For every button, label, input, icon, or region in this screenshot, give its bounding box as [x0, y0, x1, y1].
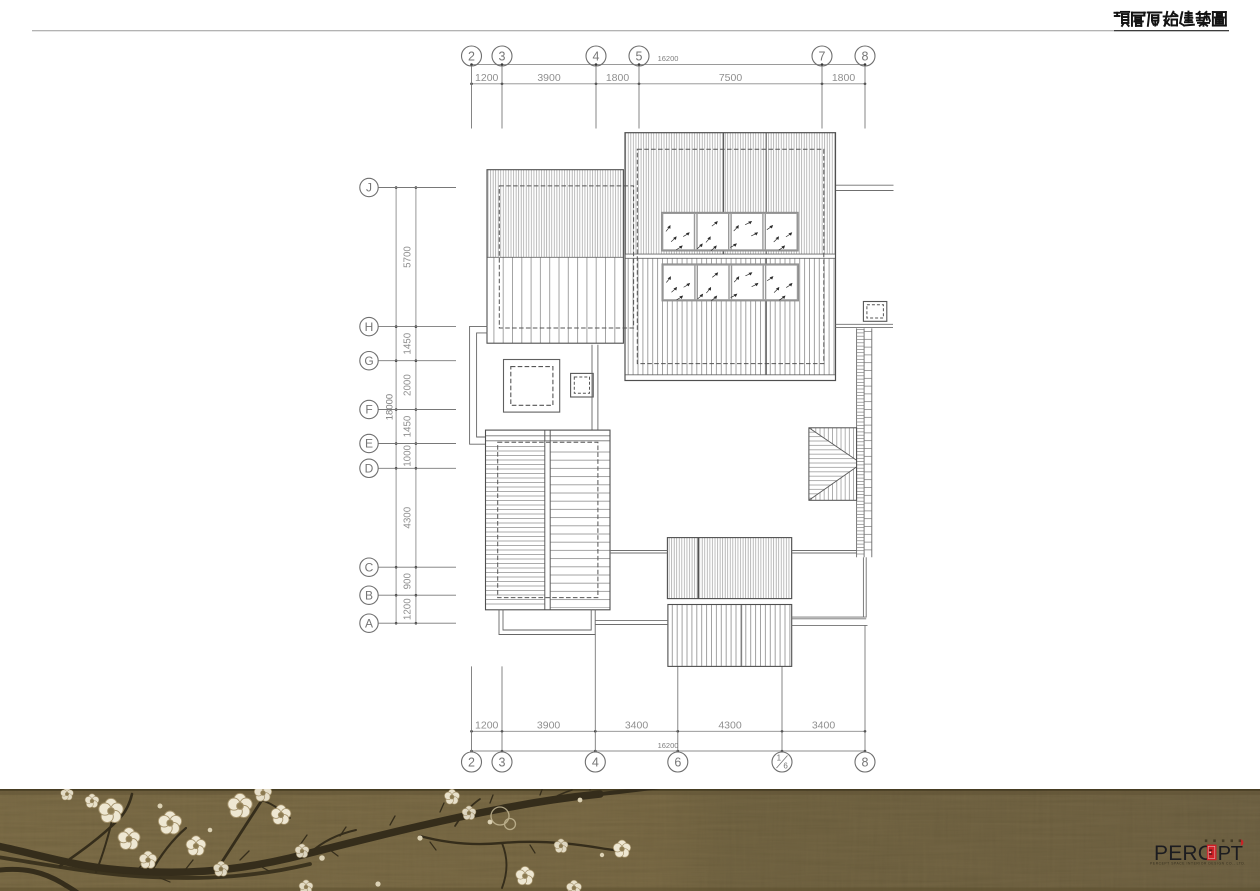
svg-text:1: 1 [777, 754, 782, 763]
svg-text:3900: 3900 [537, 720, 561, 732]
svg-text:18000: 18000 [384, 394, 395, 420]
svg-text:A: A [365, 616, 373, 630]
svg-text:3400: 3400 [812, 720, 836, 732]
svg-text:1450: 1450 [402, 415, 413, 437]
svg-text:3900: 3900 [537, 72, 561, 84]
svg-text:F: F [365, 403, 372, 417]
svg-text:E: E [365, 437, 373, 451]
svg-text:1800: 1800 [606, 72, 630, 84]
svg-text:7500: 7500 [719, 72, 743, 84]
svg-text:C: C [365, 560, 374, 574]
svg-text:8: 8 [862, 755, 869, 769]
svg-text:D: D [365, 462, 374, 476]
svg-text:8: 8 [862, 49, 869, 63]
svg-text:5700: 5700 [402, 246, 413, 268]
svg-text:2: 2 [468, 49, 475, 63]
svg-text:1200: 1200 [475, 72, 499, 84]
svg-text:J: J [366, 181, 372, 195]
svg-text:PERCEPT SPACE INTERIOR DESIGN: PERCEPT SPACE INTERIOR DESIGN CO., LTD. [1150, 862, 1246, 866]
svg-text:G: G [364, 354, 373, 368]
svg-text:2: 2 [468, 755, 475, 769]
svg-text:H: H [365, 320, 374, 334]
svg-text:5: 5 [636, 49, 643, 63]
svg-text:6: 6 [674, 755, 681, 769]
svg-text:1200: 1200 [402, 598, 413, 620]
svg-text:2000: 2000 [402, 374, 413, 396]
svg-text:6: 6 [783, 762, 788, 771]
svg-text:4300: 4300 [718, 720, 742, 732]
svg-text:3: 3 [499, 755, 506, 769]
svg-text:3: 3 [499, 49, 506, 63]
svg-text:4300: 4300 [402, 506, 413, 528]
svg-text:1200: 1200 [475, 720, 499, 732]
svg-text:B: B [365, 588, 373, 602]
svg-text:900: 900 [402, 572, 413, 589]
svg-text:3400: 3400 [625, 720, 649, 732]
svg-text:16200: 16200 [658, 54, 679, 63]
svg-text:4: 4 [593, 49, 600, 63]
svg-text:4: 4 [592, 755, 599, 769]
svg-text:1000: 1000 [402, 444, 413, 466]
svg-text:7: 7 [819, 49, 826, 63]
svg-text:1450: 1450 [402, 332, 413, 354]
svg-text:16200: 16200 [658, 741, 679, 750]
svg-text:1800: 1800 [832, 72, 856, 84]
